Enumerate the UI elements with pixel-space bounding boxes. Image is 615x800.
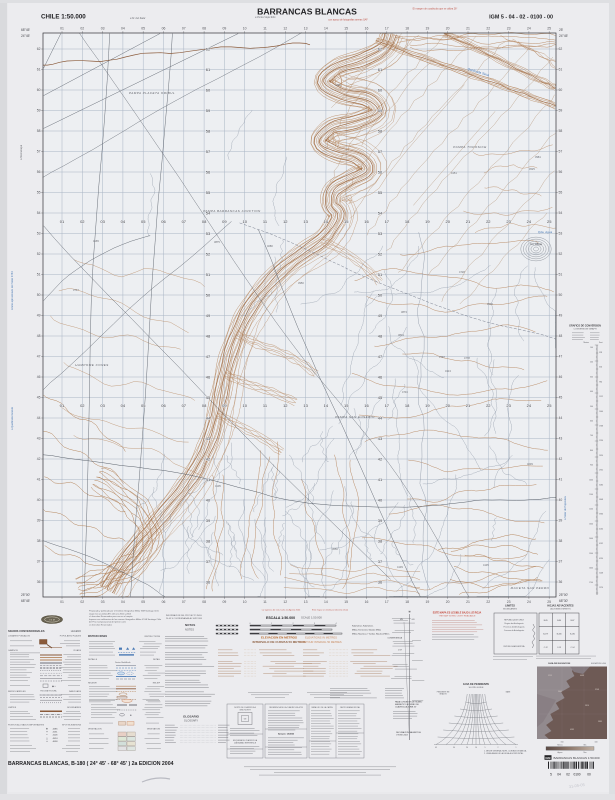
svg-text:CHILE 1:50.000: CHILE 1:50.000 — [41, 14, 86, 21]
svg-text:a Quebrada Grande: a Quebrada Grande — [10, 406, 14, 430]
svg-text:51: 51 — [37, 273, 41, 277]
svg-text:16: 16 — [364, 219, 369, 224]
svg-text:3717: 3717 — [73, 288, 79, 292]
svg-text:57: 57 — [37, 150, 41, 154]
svg-text:4525: 4525 — [529, 167, 535, 171]
svg-text:56: 56 — [559, 170, 563, 174]
svg-text:37: 37 — [37, 560, 41, 564]
svg-text:5576: 5576 — [599, 587, 603, 589]
svg-text:MN: MN — [400, 619, 404, 621]
svg-text:06: 06 — [162, 27, 166, 31]
svg-text:42: 42 — [559, 457, 563, 461]
svg-text:01: 01 — [60, 403, 65, 408]
svg-text:La vigencia de esta Carta es A: La vigencia de esta Carta es Agosto 2004 — [262, 609, 301, 612]
svg-text:POPULATED PLACES: POPULATED PLACES — [60, 635, 82, 638]
svg-text:04: 04 — [121, 27, 125, 31]
svg-text:01: 01 — [60, 600, 64, 604]
svg-text:40: 40 — [559, 498, 563, 502]
svg-text:13: 13 — [303, 403, 308, 408]
svg-text:02: 02 — [80, 403, 85, 408]
svg-text:300: 300 — [590, 376, 593, 378]
svg-text:328: 328 — [599, 352, 602, 354]
svg-text:56: 56 — [37, 170, 41, 174]
svg-text:45: 45 — [435, 747, 437, 749]
svg-text:Millas Terrestres Statute M: Millas Terrestres Statute Miles — [352, 629, 382, 632]
svg-text:10: 10 — [242, 219, 247, 224]
svg-text:49: 49 — [37, 314, 41, 318]
svg-text:1200: 1200 — [589, 509, 593, 511]
svg-text:GLOSARIO: GLOSARIO — [183, 715, 200, 719]
svg-text:NOTAS: NOTAS — [185, 623, 195, 627]
svg-text:PAMPA SAN EUSEBIO: PAMPA SAN EUSEBIO — [335, 415, 375, 419]
svg-text:B-181: B-181 — [570, 634, 575, 636]
svg-text:CAMINOS: CAMINOS — [8, 649, 18, 652]
svg-text:39: 39 — [37, 519, 41, 523]
svg-text:B-86: B-86 — [557, 620, 561, 622]
svg-text:42: 42 — [378, 457, 383, 462]
svg-text:INSTRUCTIONS: INSTRUCTIONS — [144, 636, 160, 638]
svg-text:39: 39 — [378, 518, 383, 523]
svg-text:51: 51 — [206, 272, 211, 277]
svg-text:4734: 4734 — [402, 390, 408, 394]
svg-text:44: 44 — [559, 416, 563, 420]
svg-text:DIAGRAMA / REFERENCE: DIAGRAMA / REFERENCE — [234, 741, 257, 744]
svg-text:REFERENCIA DE LA CUADRICULA UT: REFERENCIA DE LA CUADRICULA UTM — [269, 706, 303, 709]
svg-text:50: 50 — [206, 293, 211, 298]
svg-text:10: 10 — [243, 27, 247, 31]
svg-text:◆ □: ◆ □ — [52, 685, 57, 688]
svg-text:4639: 4639 — [527, 462, 533, 466]
svg-text:18: 18 — [405, 27, 409, 31]
svg-text:02: 02 — [80, 600, 84, 604]
svg-text:2. LINEA BASE EN LA ESCALA HO: 2. LINEA BASE EN LA ESCALA HORIZONTAL — [484, 752, 523, 755]
svg-text:57: 57 — [206, 149, 211, 154]
svg-text:06: 06 — [161, 219, 166, 224]
svg-text:36: 36 — [206, 580, 211, 585]
svg-text:24: 24 — [527, 403, 532, 408]
svg-text:cl. derechos Reservados: cl. derechos Reservados — [89, 624, 112, 627]
svg-text:BARRANCAS BLANCAS 1:50.000: BARRANCAS BLANCAS 1:50.000 — [554, 756, 600, 760]
svg-text:1100: 1100 — [589, 494, 593, 496]
svg-text:LIMITES: LIMITES — [8, 707, 17, 709]
svg-text:RELIEVE: RELIEVE — [88, 683, 97, 685]
svg-text:39: 39 — [206, 518, 211, 523]
svg-text:41: 41 — [37, 478, 41, 482]
svg-text:del Pino Computacional del pri: del Pino Computacional del primer corte — [89, 621, 127, 624]
svg-text:02: 02 — [80, 219, 85, 224]
svg-text:07: 07 — [182, 403, 187, 408]
svg-text:100: 100 — [595, 742, 598, 744]
svg-text:cl. derechos Reservados para: cl. derechos Reservados para uso en el m… — [89, 615, 133, 618]
svg-text:47: 47 — [378, 354, 383, 359]
svg-text:58: 58 — [206, 129, 211, 134]
svg-text:Millas Nauticas / Yardas Na: Millas Nauticas / Yardas Nautical Miles — [352, 633, 390, 636]
svg-text:segun los acuerdos ATC del ano: segun los acuerdos ATC del ano 2001 y 20… — [89, 612, 132, 615]
svg-text:60: 60 — [37, 88, 41, 92]
svg-text:Metros: Metros — [557, 744, 562, 747]
svg-text:05: 05 — [141, 600, 145, 604]
svg-text:SLOPE GUIDE: SLOPE GUIDE — [469, 687, 484, 689]
svg-text:21: 21 — [466, 219, 471, 224]
svg-text:45: 45 — [206, 395, 211, 400]
svg-text:45: 45 — [378, 395, 383, 400]
svg-text:Co. Afloja: Co. Afloja — [530, 242, 542, 246]
svg-text:OTONO 2003: OTONO 2003 — [396, 735, 408, 737]
svg-text:PAMPA BARRANCAS JUNCTION: PAMPA BARRANCAS JUNCTION — [203, 209, 261, 213]
svg-text:19: 19 — [425, 219, 430, 224]
svg-text:1: 1 — [516, 747, 517, 749]
svg-text:13: 13 — [304, 27, 308, 31]
svg-text:03: 03 — [101, 600, 105, 604]
svg-text:IGM 5 - 04 - 02 - 0100 - 00: IGM 5 - 04 - 02 - 0100 - 00 — [489, 15, 553, 21]
svg-text:ELEVATIONS IN METRES: ELEVATIONS IN METRES — [305, 636, 337, 640]
svg-text:05: 05 — [141, 403, 146, 408]
svg-text:14: 14 — [324, 403, 329, 408]
svg-text:4264: 4264 — [599, 528, 603, 530]
svg-text:18: 18 — [405, 600, 409, 604]
svg-text:42: 42 — [206, 457, 211, 462]
svg-text:44: 44 — [378, 416, 383, 421]
svg-text:ROADS: ROADS — [74, 649, 82, 652]
svg-text:12: 12 — [283, 27, 287, 31]
svg-text:El margen de cuadricula que se: El margen de cuadricula que se utiliza 2… — [413, 8, 458, 11]
svg-text:3889: 3889 — [598, 721, 602, 723]
svg-text:B-87: B-87 — [571, 620, 575, 622]
svg-text:54: 54 — [37, 211, 41, 215]
svg-text:SCALE 1:50.000: SCALE 1:50.000 — [301, 616, 322, 620]
svg-text:06: 06 — [162, 600, 166, 604]
svg-text:09: 09 — [223, 27, 227, 31]
svg-text:55: 55 — [37, 191, 41, 195]
svg-text:45: 45 — [37, 396, 41, 400]
svg-text:INSTRUCCIONES: INSTRUCCIONES — [88, 636, 107, 638]
svg-text:20: 20 — [445, 403, 450, 408]
svg-text:43: 43 — [378, 436, 383, 441]
svg-text:38: 38 — [559, 539, 563, 543]
svg-text:21: 21 — [466, 600, 470, 604]
svg-text:04: 04 — [557, 773, 561, 777]
svg-text:C-13: C-13 — [557, 647, 561, 649]
svg-text:68°45': 68°45' — [21, 599, 30, 603]
svg-text:CUADRICULA SUME 26°: CUADRICULA SUME 26° — [395, 706, 417, 709]
svg-text:60: 60 — [559, 88, 563, 92]
svg-text:37: 37 — [378, 559, 383, 564]
svg-text:150: 150 — [561, 742, 564, 744]
svg-text:05: 05 — [141, 219, 146, 224]
svg-text:HAMPOME CONES: HAMPOME CONES — [75, 363, 109, 367]
svg-text:20: 20 — [446, 600, 450, 604]
svg-text:38: 38 — [206, 539, 211, 544]
svg-text:61: 61 — [206, 67, 211, 72]
svg-text:SIGNOS CONVENCIONALES: SIGNOS CONVENCIONALES — [8, 629, 45, 633]
svg-text:RAILROADS: RAILROADS — [69, 690, 82, 693]
svg-text:4165: 4165 — [93, 239, 99, 243]
svg-text:47: 47 — [206, 354, 211, 359]
svg-text:48: 48 — [206, 334, 211, 339]
svg-text:900: 900 — [590, 465, 593, 467]
svg-text:49: 49 — [206, 313, 211, 318]
svg-text:25': 25' — [559, 28, 564, 32]
svg-text:22: 22 — [486, 403, 491, 408]
svg-text:a Punta Vieja Sitio: a Punta Vieja Sitio — [255, 16, 276, 19]
svg-text:41: 41 — [378, 477, 383, 482]
svg-text:20: 20 — [446, 27, 450, 31]
svg-text:56: 56 — [206, 170, 211, 175]
svg-text:DETAIL: DETAIL — [153, 658, 161, 661]
svg-text:3981: 3981 — [535, 155, 541, 159]
svg-text:58: 58 — [559, 129, 563, 133]
svg-text:GRADOS: GRADOS — [439, 693, 447, 696]
svg-text:INTERVALO DE CURVAS 50 METROS: INTERVALO DE CURVAS 50 METROS — [252, 640, 305, 644]
svg-text:a Salar de Pajonales: a Salar de Pajonales — [563, 495, 567, 520]
svg-text:BARRANCAS BLANCAS: BARRANCAS BLANCAS — [257, 7, 357, 17]
svg-text:LIMITES: LIMITES — [505, 605, 515, 608]
svg-text:09: 09 — [222, 403, 227, 408]
svg-text:4524: 4524 — [53, 738, 59, 740]
svg-text:03: 03 — [101, 27, 105, 31]
svg-text:4688: 4688 — [580, 675, 584, 677]
svg-text:48: 48 — [378, 334, 383, 339]
svg-text:Agean: Agean — [558, 751, 563, 754]
svg-text:3816: 3816 — [585, 705, 589, 707]
svg-text:16: 16 — [365, 600, 369, 604]
svg-text:37: 37 — [559, 560, 563, 564]
svg-text:3902: 3902 — [487, 302, 493, 306]
svg-text:44: 44 — [206, 416, 211, 421]
svg-text:14: 14 — [324, 600, 328, 604]
svg-text:10: 10 — [243, 600, 247, 604]
svg-text:36: 36 — [378, 580, 383, 585]
svg-text:55: 55 — [378, 190, 383, 195]
svg-text:49: 49 — [559, 314, 563, 318]
svg-text:19: 19 — [426, 600, 430, 604]
svg-text:11: 11 — [263, 27, 267, 31]
svg-text:15: 15 — [344, 27, 348, 31]
svg-text:57: 57 — [559, 150, 563, 154]
svg-text:4118: 4118 — [53, 735, 58, 737]
svg-text:36: 36 — [559, 580, 563, 584]
svg-text:04: 04 — [121, 219, 126, 224]
svg-text:25°00': 25°00' — [21, 593, 30, 597]
svg-text:656: 656 — [599, 367, 602, 369]
svg-text:50: 50 — [378, 293, 383, 298]
svg-text:15: 15 — [344, 219, 349, 224]
svg-text:REPUBLICA ARGENTINA: REPUBLICA ARGENTINA — [504, 645, 526, 648]
svg-text:07: 07 — [182, 600, 186, 604]
svg-text:3936: 3936 — [599, 514, 603, 516]
svg-text:20: 20 — [466, 747, 468, 749]
svg-text:58: 58 — [378, 129, 383, 134]
svg-text:05: 05 — [141, 27, 145, 31]
svg-text:REPUBLICA DE CHILE: REPUBLICA DE CHILE — [504, 619, 525, 622]
svg-text:a M. del Salar: a M. del Salar — [130, 17, 146, 20]
svg-text:07: 07 — [182, 219, 187, 224]
svg-text:03: 03 — [100, 219, 105, 224]
svg-text:600: 600 — [590, 421, 593, 423]
svg-text:17: 17 — [385, 600, 389, 604]
svg-text:3950: 3950 — [298, 281, 304, 285]
svg-text:41: 41 — [206, 477, 211, 482]
svg-text:3814: 3814 — [398, 333, 404, 337]
svg-text:59: 59 — [37, 109, 41, 113]
svg-text:17: 17 — [385, 27, 389, 31]
svg-text:36: 36 — [37, 580, 41, 584]
svg-text:01: 01 — [60, 27, 64, 31]
svg-text:25: 25 — [547, 403, 552, 408]
svg-text:54: 54 — [559, 211, 563, 215]
svg-text:24-45 S COORDENADAS AL SUR 198: 24-45 S COORDENADAS AL SUR 1984 — [166, 617, 203, 620]
svg-text:37: 37 — [206, 559, 211, 564]
svg-text:55: 55 — [559, 191, 563, 195]
svg-text:B-179: B-179 — [543, 634, 548, 636]
svg-text:49: 49 — [378, 313, 383, 318]
svg-text:Metros: Metros — [584, 341, 590, 344]
svg-text:40: 40 — [378, 498, 383, 503]
svg-text:C-14: C-14 — [571, 647, 575, 649]
svg-text:56: 56 — [378, 170, 383, 175]
svg-text:25°00': 25°00' — [559, 593, 568, 597]
svg-text:23: 23 — [506, 403, 511, 408]
svg-text:VEGETACION: VEGETACION — [88, 728, 102, 731]
svg-text:1600: 1600 — [589, 568, 593, 570]
svg-text:Comuna de Antofagasta: Comuna de Antofagasta — [504, 629, 525, 632]
svg-text:23: 23 — [507, 27, 511, 31]
svg-text:1300: 1300 — [589, 523, 593, 525]
svg-text:PAMPA TODOSICE: PAMPA TODOSICE — [453, 145, 487, 149]
svg-text:ESCALA 1:50.000: ESCALA 1:50.000 — [266, 616, 295, 620]
svg-text:GUIA DE PENDIENTE: GUIA DE PENDIENTE — [463, 682, 490, 686]
svg-text:10: 10 — [242, 403, 247, 408]
svg-text:3641: 3641 — [558, 691, 562, 693]
svg-text:16: 16 — [365, 27, 369, 31]
svg-text:38: 38 — [378, 539, 383, 544]
svg-text:02: 02 — [566, 773, 570, 777]
svg-text:42: 42 — [37, 457, 41, 461]
svg-text:24: 24 — [527, 27, 531, 31]
svg-text:ADJOINING SHEETS: ADJOINING SHEETS — [550, 608, 571, 611]
svg-text:5259: 5259 — [548, 675, 552, 677]
svg-text:62: 62 — [378, 47, 383, 52]
svg-text:100: 100 — [590, 347, 593, 349]
svg-text:06: 06 — [161, 403, 166, 408]
svg-text:41: 41 — [559, 478, 563, 482]
svg-text:3797: 3797 — [439, 355, 445, 359]
svg-text:BARRANCAS BLANCAS, B-180 ( 24°: BARRANCAS BLANCAS, B-180 ( 24° 45' - 68°… — [8, 761, 174, 767]
svg-text:25: 25 — [547, 600, 551, 604]
svg-text:ELEVATION 0-300: ELEVATION 0-300 — [591, 662, 606, 665]
svg-text:Kilometros Kilometers: Kilometros Kilometers — [352, 625, 374, 628]
svg-text:51: 51 — [559, 273, 563, 277]
svg-text:59: 59 — [559, 109, 563, 113]
svg-text:24°45': 24°45' — [21, 34, 30, 38]
svg-text:53: 53 — [559, 232, 563, 236]
svg-text:62: 62 — [559, 47, 563, 51]
svg-text:4139: 4139 — [397, 565, 403, 569]
svg-text:0: 0 — [249, 623, 250, 625]
svg-text:NOTES: NOTES — [185, 628, 194, 632]
svg-text:I G M: I G M — [49, 620, 55, 622]
svg-text:25: 25 — [547, 219, 552, 224]
svg-text:5: 5 — [550, 773, 552, 777]
svg-text:GRAFICO DE CONVERSION: GRAFICO DE CONVERSION — [569, 325, 601, 328]
svg-text:13: 13 — [303, 219, 308, 224]
svg-text:15: 15 — [344, 600, 348, 604]
svg-text:24: 24 — [527, 219, 532, 224]
svg-text:47: 47 — [37, 355, 41, 359]
svg-text:B-180: B-180 — [557, 634, 562, 636]
svg-text:46: 46 — [559, 375, 563, 379]
svg-text:19: 19 — [426, 27, 430, 31]
svg-text:Ejemplo: 1254365: Ejemplo: 1254365 — [278, 733, 294, 736]
svg-text:Mar: Mar — [584, 751, 587, 754]
svg-text:INFORMACION DEL PROYECTO WGS: INFORMACION DEL PROYECTO WGS — [166, 614, 202, 617]
svg-text:400: 400 — [590, 391, 593, 393]
svg-text:24°45': 24°45' — [559, 34, 568, 38]
svg-text:a Monturaqui: a Monturaqui — [19, 144, 23, 160]
svg-text:18: 18 — [405, 403, 410, 408]
svg-text:10: 10 — [475, 747, 477, 749]
svg-text:BOUNDARIES: BOUNDARIES — [67, 706, 81, 709]
svg-text:22: 22 — [486, 600, 490, 604]
svg-text:FERROCARRILES: FERROCARRILES — [8, 690, 26, 693]
svg-text:2296: 2296 — [599, 440, 603, 442]
svg-text:4383: 4383 — [570, 729, 574, 731]
svg-text:Mts: Mts — [584, 744, 587, 747]
svg-text:62: 62 — [37, 47, 41, 51]
svg-text:MACETA SAN PEDRO: MACETA SAN PEDRO — [511, 586, 550, 590]
svg-text:08: 08 — [202, 27, 206, 31]
svg-text:1000: 1000 — [589, 479, 593, 481]
svg-text:Qda. Agua: Qda. Agua — [538, 230, 553, 234]
svg-text:38: 38 — [37, 539, 41, 543]
svg-text:39: 39 — [559, 519, 563, 523]
svg-text:BOUNDARIES: BOUNDARIES — [503, 608, 517, 611]
svg-text:4496: 4496 — [335, 83, 341, 87]
svg-text:53: 53 — [206, 231, 211, 236]
svg-text:11: 11 — [263, 600, 267, 604]
svg-text:4080: 4080 — [267, 244, 273, 248]
svg-text:52: 52 — [559, 252, 563, 256]
svg-text:18: 18 — [405, 219, 410, 224]
svg-text:17: 17 — [385, 219, 390, 224]
svg-text:60: 60 — [206, 88, 211, 93]
svg-text:55: 55 — [206, 190, 211, 195]
svg-text:14: 14 — [324, 219, 329, 224]
svg-text:LUGARES POBLADOS: LUGARES POBLADOS — [8, 635, 31, 638]
svg-text:14: 14 — [324, 27, 328, 31]
svg-text:con apoyo de fotografias aerea: con apoyo de fotografias aereas SAF — [328, 19, 368, 22]
svg-text:C-12: C-12 — [544, 647, 548, 649]
svg-text:4920: 4920 — [599, 558, 603, 560]
svg-text:5248: 5248 — [599, 573, 603, 575]
svg-text:12: 12 — [283, 403, 288, 408]
svg-text:53: 53 — [378, 231, 383, 236]
svg-text:07: 07 — [182, 27, 186, 31]
svg-text:1: 1 — [271, 623, 272, 625]
svg-text:SPOT ELEVATIONS: SPOT ELEVATIONS — [62, 724, 82, 727]
svg-text:54: 54 — [378, 211, 383, 216]
svg-text:52: 52 — [37, 252, 41, 256]
svg-text:Provincia de Antofagasta: Provincia de Antofagasta — [504, 626, 526, 629]
svg-text:50: 50 — [559, 293, 563, 297]
svg-text:1. MEDIR GENERAL NIVEL CURVAS: 1. MEDIR GENERAL NIVEL CURVAS DISTANCIA — [484, 750, 527, 753]
svg-text:VEGETATION: VEGETATION — [147, 728, 161, 731]
svg-text:200: 200 — [590, 362, 593, 364]
svg-text:3873: 3873 — [401, 310, 407, 314]
svg-text:61: 61 — [559, 68, 563, 72]
svg-text:CONVERGENCIA: CONVERGENCIA — [387, 637, 402, 640]
svg-text:THE MAP IS RED LIGHT READABLE: THE MAP IS RED LIGHT READABLE — [439, 615, 476, 618]
